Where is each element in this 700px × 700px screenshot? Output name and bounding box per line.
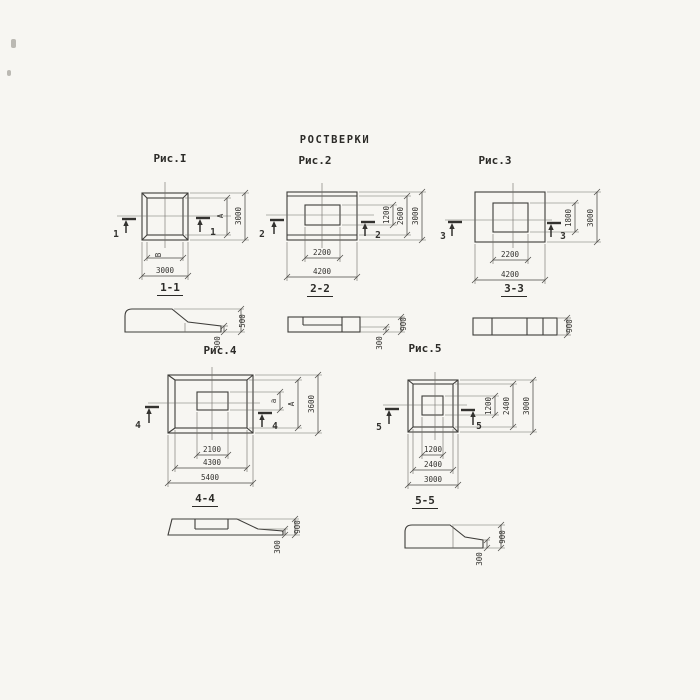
- outline-rect: [168, 375, 253, 433]
- dim-label-edge_height: 300: [475, 552, 484, 566]
- section-5-5-caption-text: 5-5: [412, 494, 438, 509]
- section-profile: [405, 525, 483, 548]
- figure-2-caption: Рис.2: [275, 154, 355, 167]
- figure-4-plan: 210043005400аА360044: [128, 363, 350, 495]
- dim-label-outer_width: 3000: [424, 475, 443, 484]
- scan-artifact: [11, 39, 16, 48]
- outline-line: [183, 193, 188, 198]
- outline-line: [168, 375, 175, 380]
- dim-label-outer_width: 4200: [501, 270, 520, 279]
- outline-rect: [413, 384, 453, 427]
- section-cut-label: 3: [560, 231, 566, 242]
- section-cut-label: 3: [440, 231, 446, 242]
- dim-label-opening_width: 2100: [203, 445, 222, 454]
- dim-label-opening_width: 2200: [313, 248, 332, 257]
- figure-3-plan: 180030002200420033: [440, 178, 622, 288]
- section-cut-label: 2: [375, 230, 381, 241]
- outline-line: [408, 380, 413, 384]
- dim-label-total_height: 500: [238, 314, 247, 328]
- dim-label-opening_width: 2200: [501, 250, 520, 259]
- outline-line: [247, 375, 253, 380]
- scan-artifact: [7, 70, 11, 76]
- drawing-sheet: РОСТВЕРКИ Рис.I Рис.2 Рис.3 Рис.4 Рис.5 …: [0, 0, 700, 700]
- cut-arrow-head: [362, 223, 367, 229]
- dim-label-edge_height: 300: [375, 336, 384, 350]
- dim-label-opening_width: 1200: [424, 445, 443, 454]
- outline-line: [408, 427, 413, 432]
- section-cut-label: 5: [476, 421, 482, 432]
- section-cut-label: 5: [376, 422, 382, 433]
- dim-label-inner_height: А: [216, 213, 225, 218]
- dim-label-outer_height: 3600: [307, 394, 316, 413]
- figure-1-plan: В3000А300011: [95, 168, 260, 293]
- dim-label-outer_width: 4200: [313, 267, 332, 276]
- dim-label-opening_height: 1200: [484, 396, 493, 415]
- dim-label-mid_width: 4300: [203, 458, 222, 467]
- outline-rect: [475, 192, 545, 242]
- outline-line: [183, 235, 188, 240]
- dim-label-outer_height: 3000: [586, 208, 595, 227]
- cut-arrow-head: [146, 408, 151, 414]
- section-cut-label: 4: [135, 420, 141, 431]
- figure-3-caption: Рис.3: [455, 154, 535, 167]
- dim-label-opening_height: 1800: [564, 208, 573, 227]
- dim-label-edge_height: 300: [213, 336, 222, 350]
- cut-arrow-head: [386, 410, 391, 416]
- dim-label-outer_height: 3000: [234, 206, 243, 225]
- dim-label-opening_height: 1200: [382, 205, 391, 224]
- section-2-2-view: 300900: [255, 300, 435, 355]
- dim-label-outer_width: 3000: [156, 266, 175, 275]
- dim-label-outer_height: 3000: [522, 396, 531, 415]
- cut-arrow-head: [470, 411, 475, 417]
- dim-label-outer_width: 5400: [201, 473, 220, 482]
- dim-label-inner_width: В: [154, 252, 163, 257]
- outline-line: [453, 380, 458, 384]
- dim-label-outer_height: 3000: [411, 206, 420, 225]
- sheet-title: РОСТВЕРКИ: [265, 134, 405, 146]
- outline-line: [168, 428, 175, 433]
- section-3-3-view: 900: [455, 305, 595, 347]
- figure-2-plan: 1200260030002200420022: [250, 178, 435, 288]
- dim-label-opening_height: а: [269, 399, 278, 404]
- section-cut-label: 2: [259, 229, 265, 240]
- section-profile: [125, 309, 221, 332]
- section-cut-label: 4: [272, 421, 278, 432]
- dim-label-total_height: 900: [293, 520, 302, 534]
- cut-arrow-head: [449, 223, 454, 229]
- section-1-1-view: 300500: [118, 298, 260, 356]
- dim-label-mid_width: 2400: [424, 460, 443, 469]
- outline-rect: [493, 203, 528, 232]
- section-5-5-view: 300900: [395, 512, 530, 567]
- section-4-4-view: 300900: [138, 503, 328, 561]
- dim-label-mid_height: 2600: [396, 206, 405, 225]
- section-cut-label: 1: [210, 227, 216, 238]
- outline-line: [247, 428, 253, 433]
- cut-arrow-head: [548, 224, 553, 230]
- outline-line: [453, 427, 458, 432]
- section-profile: [168, 519, 283, 535]
- outline-rect: [473, 318, 557, 335]
- cut-arrow-head: [271, 221, 276, 227]
- outline-rect: [422, 396, 443, 415]
- figure-1-caption: Рис.I: [130, 152, 210, 165]
- outline-line: [142, 235, 147, 240]
- outline-line: [142, 193, 147, 198]
- section-cut-label: 1: [113, 229, 119, 240]
- cut-arrow-head: [259, 414, 264, 420]
- figure-5-plan: 12002400300012002400300055: [373, 368, 553, 496]
- cut-arrow-head: [197, 219, 202, 225]
- outline-rect: [175, 380, 247, 428]
- dim-label-edge_height: 300: [273, 540, 282, 554]
- dim-label-mid_height: А: [287, 401, 296, 406]
- dim-label-total_height: 900: [399, 317, 408, 331]
- dim-label-total_height: 900: [565, 319, 574, 333]
- cut-arrow-head: [123, 220, 128, 226]
- outline-rect: [408, 380, 458, 432]
- outline-rect: [197, 392, 228, 410]
- dim-label-mid_height: 2400: [502, 396, 511, 415]
- dim-label-total_height: 900: [498, 530, 507, 544]
